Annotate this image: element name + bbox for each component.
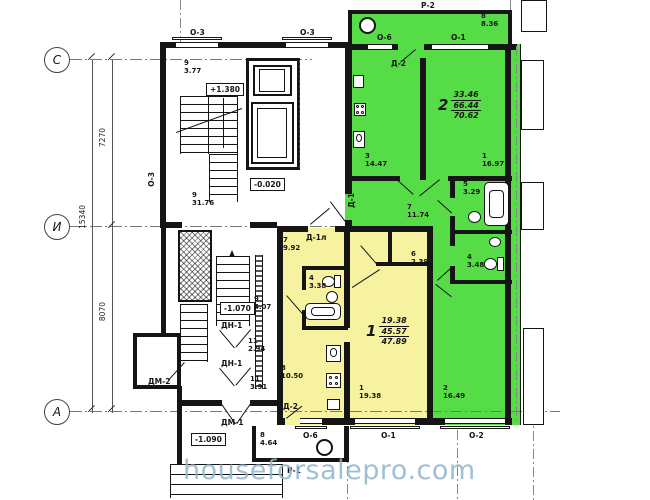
adjacent-section-stub: [521, 60, 544, 130]
stairs-lower-flight-right: [216, 256, 250, 326]
axis-line-a: [70, 411, 560, 412]
wall-segment: [277, 418, 285, 425]
room-area: 11.74: [407, 212, 429, 220]
door-swing: [330, 201, 346, 222]
wall-segment: [160, 222, 182, 228]
window-sill: [440, 426, 510, 429]
wall-segment: [178, 400, 222, 406]
area-living: 33.46: [451, 90, 480, 101]
stairs-divider: [208, 96, 209, 154]
fridge-icon: [353, 75, 364, 88]
room-area: 31.76: [192, 200, 214, 208]
room-area: 9.92: [283, 245, 300, 253]
room-label-green-hall: 711.74: [407, 204, 429, 219]
window-label-o2-bottom: О-2: [469, 431, 484, 440]
room-area: 4.07: [254, 304, 271, 312]
shaft-hatched: [178, 230, 212, 302]
toilet-icon: [484, 258, 497, 270]
area-living: 19.38: [379, 316, 408, 327]
centerline: [533, 413, 534, 500]
wall-segment: [161, 228, 166, 338]
door-label-dn1-lower: ДН-1: [221, 359, 242, 368]
room-area: 8.36: [481, 21, 498, 29]
balcony-opening-circle: [316, 439, 333, 456]
room-label-yellow-balcony: 84.64: [260, 432, 277, 447]
dim-upper-label: 7270: [98, 128, 107, 147]
room-area: 2.94: [248, 346, 265, 354]
window-sill: [350, 426, 420, 429]
washbasin-icon: [468, 211, 481, 223]
door-label-d2-yellow: Д-2: [283, 402, 298, 411]
room-label-yellow-kitchen: 310.50: [281, 365, 303, 380]
elevator-cab-upper-inner: [259, 69, 285, 92]
room-label-lobby: 931.76: [192, 192, 214, 207]
window-label-o6-balcony: О-6: [377, 33, 392, 42]
wall-segment: [415, 418, 445, 425]
room-area: 3.29: [463, 189, 480, 197]
wall-segment: [505, 44, 511, 425]
yellow-apartment-fill: [277, 228, 433, 425]
room-label-vestibule-lower: 113.91: [250, 376, 267, 391]
wall-segment: [388, 232, 392, 264]
room-area: 3.77: [184, 68, 201, 76]
axis-letter-a: А: [53, 405, 61, 419]
window-label-o3-right: О-3: [300, 28, 315, 37]
room-label-vestibule-upper: 112.94: [248, 338, 265, 353]
wall-segment: [450, 234, 455, 246]
room-label-green-wc: 43.48: [467, 254, 484, 269]
area-apartment: 45.57: [379, 327, 408, 338]
axis-letter-c: С: [53, 53, 61, 67]
sink-icon: [326, 345, 341, 362]
area-total: 70.62: [451, 111, 480, 121]
window-label-o3-left: О-3: [190, 28, 205, 37]
room-label-yellow-hall: 79.92: [283, 237, 300, 252]
floor-plan: С И А 15340 7270 8070: [0, 0, 650, 500]
centerline: [510, 0, 511, 10]
elevator-cab-lower-inner: [257, 108, 287, 158]
balcony-label-p2: Р-2: [421, 1, 435, 10]
elevation-box: -1.070: [220, 302, 255, 315]
door-swing: [235, 367, 251, 385]
wall-segment: [505, 418, 512, 425]
room-label-green-kitchen: 314.47: [365, 153, 387, 168]
wall-segment: [345, 44, 352, 194]
window-sill: [295, 426, 327, 429]
sink-icon: [353, 131, 365, 148]
wall-segment: [277, 228, 283, 425]
wall-segment: [344, 228, 350, 328]
apartment-1-area-label: 1 19.38 45.57 47.89: [366, 316, 409, 347]
wall-segment: [450, 280, 512, 284]
area-apartment: 66.44: [451, 101, 480, 112]
room-label-yellow-living: 119.38: [359, 385, 381, 400]
stairs-arrow-line: [223, 98, 224, 148]
wall-cavity-dashes: [516, 46, 517, 424]
window-o6-bottom: [300, 418, 322, 424]
bathtub-icon: [305, 303, 341, 320]
window-o1-balcony: [432, 44, 488, 50]
wall-segment: [302, 326, 348, 330]
window-label-o1-balcony: О-1: [451, 33, 466, 42]
window-label-o1-bottom: О-1: [381, 431, 396, 440]
wall-segment: [177, 386, 182, 464]
room-area: 4.64: [260, 440, 277, 448]
door-label-dm1: ДМ-1: [221, 418, 243, 427]
cabinet-icon: [327, 399, 340, 410]
door-label-d1l-yellow: Д-1л: [306, 233, 327, 242]
adjacent-section-stub: [521, 182, 544, 230]
room-label-stair-upper: 93.77: [184, 60, 201, 75]
wall-segment: [344, 342, 350, 425]
axis-circle-a: А: [44, 399, 70, 425]
window-o2-bottom: [445, 418, 505, 424]
door-label-d2-green: Д-2: [391, 59, 406, 68]
room-label-stair-lower: 94.07: [254, 296, 271, 311]
dimension-line-inner: [112, 60, 113, 413]
dim-lower-label: 8070: [98, 302, 107, 321]
door-label-dm2: ДМ-2: [148, 377, 170, 386]
room-area: 3.48: [467, 262, 484, 270]
wall-segment: [160, 42, 166, 228]
room-area: 19.38: [359, 393, 381, 401]
wall-segment: [450, 176, 455, 198]
wall-segment: [302, 266, 348, 270]
room-label-yellow-bath: 43.38: [309, 275, 326, 290]
wall-segment: [352, 176, 400, 181]
toilet-tank-icon: [497, 257, 504, 271]
window-o3-right: [286, 42, 328, 48]
room-area: 2.39: [411, 259, 428, 267]
room-label-green-living: 116.97: [482, 153, 504, 168]
window-o3-left: [176, 42, 218, 48]
room-area: 3.38: [309, 283, 326, 291]
stairs-lower-flight-left: [180, 304, 208, 362]
dimension-line-total: [92, 60, 93, 413]
door-swing: [219, 330, 235, 348]
glazed-partition: [255, 255, 263, 389]
elevation-box: +1.380: [206, 83, 244, 96]
adjacent-section-stub: [521, 0, 547, 32]
room-area: 16.49: [443, 393, 465, 401]
window-sill: [282, 37, 332, 40]
centerline: [180, 0, 181, 42]
window-o6-balcony: [368, 44, 392, 50]
window-sill: [172, 37, 222, 40]
wall-segment: [420, 58, 426, 180]
dim-total-label: 15340: [78, 205, 87, 229]
elevation-box: -0.020: [250, 178, 285, 191]
axis-circle-i: И: [44, 214, 70, 240]
stairs-lower-arrow: [229, 250, 235, 257]
wall-segment: [322, 418, 355, 425]
window-label-o3-wall: О-3: [147, 172, 156, 187]
axis-circle-c: С: [44, 47, 70, 73]
area-total: 47.89: [379, 337, 408, 347]
wall-segment: [348, 10, 352, 46]
wall-segment: [508, 10, 512, 46]
stove-icon: [354, 103, 366, 116]
stove-icon: [326, 373, 341, 388]
apartment-2-area-label: 2 33.46 66.44 70.62: [438, 90, 481, 121]
adjacent-section-stub: [523, 328, 544, 425]
balcony-opening-circle-green: [359, 17, 376, 34]
room-label-green-balcony: 88.36: [481, 13, 498, 28]
elevation-box: -1.090: [191, 433, 226, 446]
washbasin-icon: [489, 237, 501, 247]
door-swing: [219, 368, 235, 386]
room-area: 3.91: [250, 384, 267, 392]
apartment-2-number: 2: [438, 98, 448, 113]
room-area: 16.97: [482, 161, 504, 169]
shaft-dashed-line: [299, 60, 300, 168]
bathtub-icon: [484, 182, 509, 226]
door-label-dn1-upper: ДН-1: [221, 321, 242, 330]
room-area: 10.50: [281, 373, 303, 381]
window-label-o6-bottom: О-6: [303, 431, 318, 440]
door-label-d1-green: Д-1: [347, 193, 356, 208]
door-gap-d2-green: [398, 44, 424, 50]
axis-letter-i: И: [53, 220, 62, 234]
wall-segment: [250, 222, 277, 228]
room-label-green-bedroom: 216.49: [443, 385, 465, 400]
door-swing: [310, 208, 330, 225]
apartment-1-number: 1: [366, 324, 376, 339]
room-label-green-bath: 53.29: [463, 181, 480, 196]
watermark: houseforsalepro.com: [183, 455, 476, 486]
wall-segment: [450, 230, 512, 234]
room-label-yellow-closet: 62.39: [411, 251, 428, 266]
washbasin-icon: [326, 291, 338, 303]
apartment-2-areas: 33.46 66.44 70.62: [451, 90, 480, 121]
wall-segment: [302, 266, 306, 290]
room-area: 14.47: [365, 161, 387, 169]
window-o1-bottom: [355, 418, 415, 424]
wall-segment: [277, 226, 308, 232]
toilet-tank-icon: [334, 275, 341, 288]
apartment-1-areas: 19.38 45.57 47.89: [379, 316, 408, 347]
